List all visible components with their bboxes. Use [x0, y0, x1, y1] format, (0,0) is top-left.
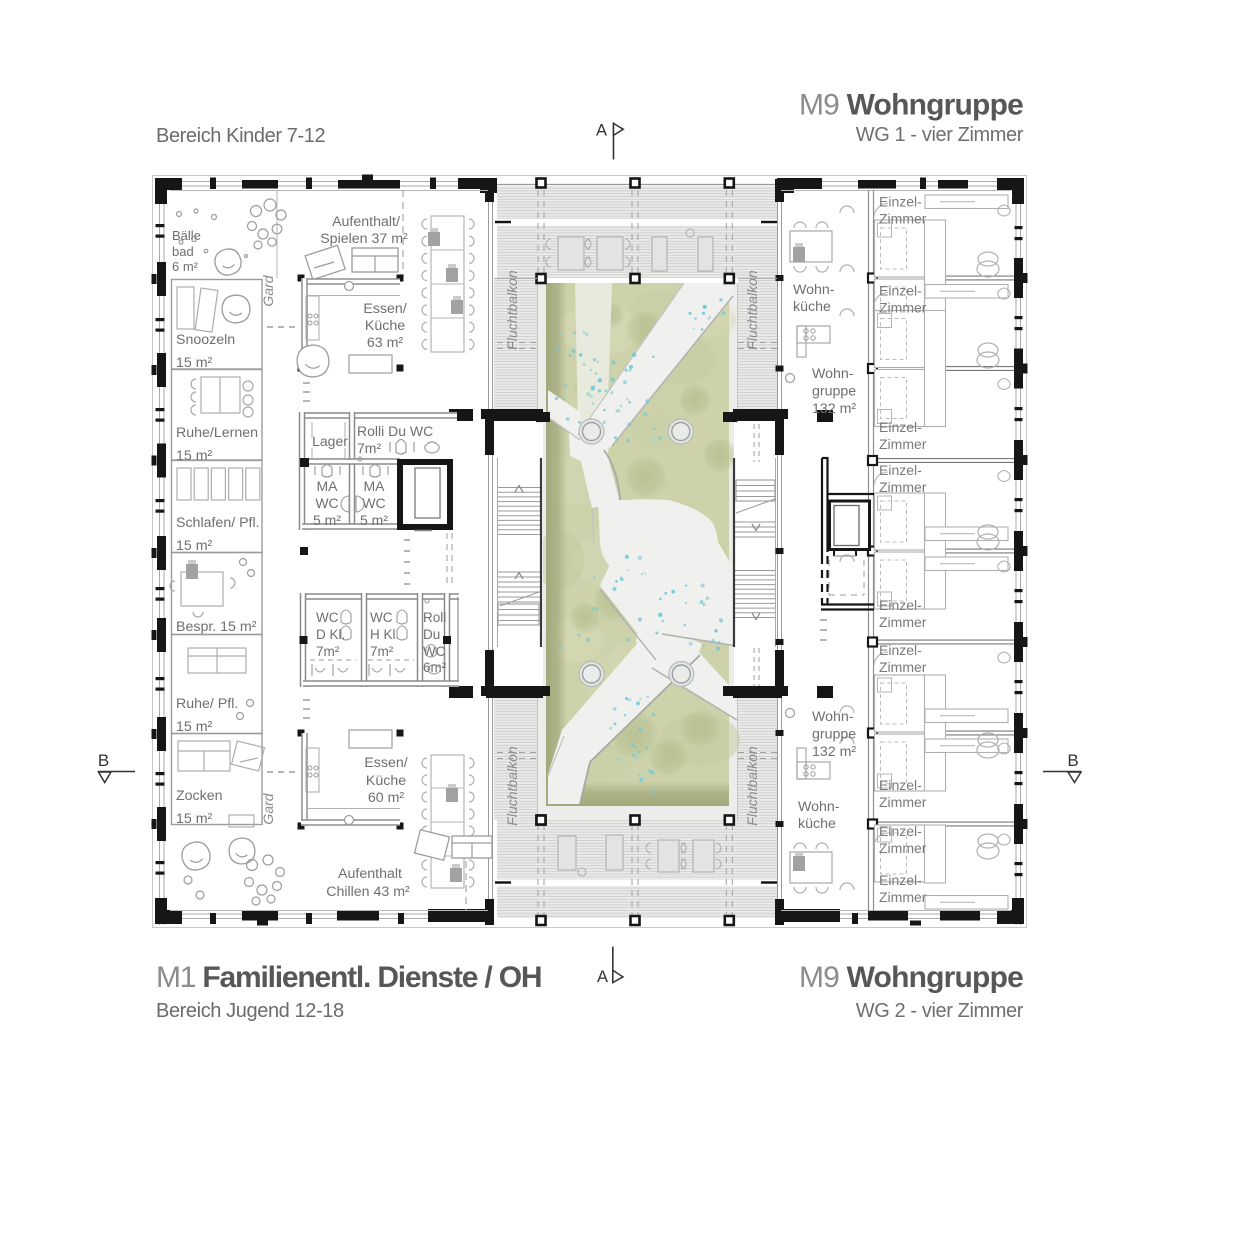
svg-text:Wohn-: Wohn- — [793, 282, 835, 298]
svg-text:Einzel-: Einzel- — [879, 872, 922, 888]
svg-text:Einzel-: Einzel- — [879, 462, 922, 478]
svg-text:Zimmer: Zimmer — [879, 436, 927, 452]
svg-text:Spielen 37 m²: Spielen 37 m² — [320, 231, 408, 247]
svg-text:15 m²: 15 m² — [176, 538, 213, 554]
svg-text:Essen/: Essen/ — [363, 301, 406, 317]
svg-text:küche: küche — [798, 816, 836, 832]
svg-text:WG 1 - vier Zimmer: WG 1 - vier Zimmer — [856, 124, 1024, 146]
svg-text:6 m²: 6 m² — [172, 259, 199, 274]
svg-text:küche: küche — [793, 299, 831, 315]
svg-text:bad: bad — [172, 244, 194, 259]
svg-text:15 m²: 15 m² — [176, 448, 213, 464]
svg-text:Fluchtbalkon: Fluchtbalkon — [744, 746, 760, 826]
svg-text:Fluchtbalkon: Fluchtbalkon — [504, 746, 520, 826]
svg-text:Essen/: Essen/ — [364, 755, 407, 771]
svg-text:15 m²: 15 m² — [176, 355, 213, 371]
svg-text:H Kl.: H Kl. — [370, 627, 399, 642]
svg-text:Fluchtbalkon: Fluchtbalkon — [504, 270, 520, 350]
svg-text:Einzel-: Einzel- — [879, 194, 922, 210]
svg-text:Aufenthalt: Aufenthalt — [338, 866, 402, 882]
svg-text:Fluchtbalkon: Fluchtbalkon — [744, 270, 760, 350]
svg-text:Küche: Küche — [365, 318, 405, 334]
svg-text:WC: WC — [362, 495, 385, 511]
svg-text:Ruhe/Lernen: Ruhe/Lernen — [176, 425, 258, 441]
svg-text:Bespr. 15 m²: Bespr. 15 m² — [176, 619, 257, 635]
svg-text:15 m²: 15 m² — [176, 811, 213, 827]
svg-text:MA: MA — [317, 478, 339, 494]
svg-text:Einzel-: Einzel- — [879, 777, 922, 793]
svg-text:Schlafen/ Pfl.: Schlafen/ Pfl. — [176, 515, 260, 531]
svg-text:Zimmer: Zimmer — [879, 300, 927, 316]
svg-text:WC: WC — [370, 610, 393, 625]
svg-text:Snoozeln: Snoozeln — [176, 332, 235, 348]
svg-text:Ruhe/ Pfl.: Ruhe/ Pfl. — [176, 696, 238, 712]
svg-text:Bereich Jugend 12-18: Bereich Jugend 12-18 — [156, 1000, 344, 1022]
svg-text:Aufenthalt/: Aufenthalt/ — [332, 214, 400, 230]
svg-text:7m²: 7m² — [316, 644, 340, 659]
svg-text:Wohn-: Wohn- — [812, 709, 854, 725]
svg-text:Einzel-: Einzel- — [879, 597, 922, 613]
svg-text:60 m²: 60 m² — [368, 790, 405, 806]
svg-text:Einzel-: Einzel- — [879, 419, 922, 435]
svg-text:Chillen 43 m²: Chillen 43 m² — [326, 884, 410, 900]
svg-text:A: A — [596, 122, 607, 140]
svg-text:A: A — [597, 968, 608, 986]
svg-text:B: B — [98, 751, 109, 770]
svg-text:15 m²: 15 m² — [176, 719, 213, 735]
svg-text:5 m²: 5 m² — [313, 512, 341, 528]
svg-text:gruppe: gruppe — [812, 727, 856, 743]
svg-text:B: B — [1067, 751, 1078, 770]
svg-text:Zimmer: Zimmer — [879, 889, 927, 905]
svg-text:Zocken: Zocken — [176, 788, 223, 804]
svg-text:WC: WC — [316, 610, 339, 625]
svg-text:Wohn-: Wohn- — [798, 799, 840, 815]
svg-text:Bereich Kinder 7-12: Bereich Kinder 7-12 — [156, 125, 325, 147]
svg-text:Zimmer: Zimmer — [879, 794, 927, 810]
svg-text:Du: Du — [423, 627, 440, 642]
svg-text:7m²: 7m² — [357, 440, 381, 456]
svg-text:Gard: Gard — [260, 792, 276, 824]
svg-text:Zimmer: Zimmer — [879, 659, 927, 675]
svg-text:Einzel-: Einzel- — [879, 823, 922, 839]
svg-text:M1 Familienentl. Dienste / OH: M1 Familienentl. Dienste / OH — [156, 961, 541, 994]
svg-text:Zimmer: Zimmer — [879, 614, 927, 630]
svg-text:MA: MA — [364, 478, 386, 494]
svg-text:Einzel-: Einzel- — [879, 642, 922, 658]
svg-text:gruppe: gruppe — [812, 384, 856, 400]
svg-text:Lager: Lager — [312, 433, 348, 449]
svg-text:Rolli Du WC: Rolli Du WC — [357, 423, 433, 439]
svg-text:Gard: Gard — [260, 274, 276, 306]
svg-text:132 m²: 132 m² — [812, 401, 856, 417]
svg-text:Zimmer: Zimmer — [879, 211, 927, 227]
svg-text:Wohn-: Wohn- — [812, 366, 854, 382]
svg-text:Roll: Roll — [423, 610, 446, 625]
svg-text:WC: WC — [315, 495, 338, 511]
svg-text:5 m²: 5 m² — [360, 512, 388, 528]
svg-text:M9 Wohngruppe: M9 Wohngruppe — [799, 89, 1023, 122]
svg-text:6m²: 6m² — [423, 660, 447, 675]
svg-text:132 m²: 132 m² — [812, 744, 856, 760]
svg-text:Zimmer: Zimmer — [879, 479, 927, 495]
svg-text:Einzel-: Einzel- — [879, 283, 922, 299]
svg-text:63 m²: 63 m² — [367, 335, 404, 351]
svg-text:Zimmer: Zimmer — [879, 840, 927, 856]
svg-text:Küche: Küche — [366, 773, 406, 789]
svg-text:7m²: 7m² — [370, 644, 394, 659]
svg-text:Bälle: Bälle — [172, 228, 201, 243]
svg-text:WG 2 - vier Zimmer: WG 2 - vier Zimmer — [856, 1000, 1024, 1022]
svg-text:M9 Wohngruppe: M9 Wohngruppe — [799, 961, 1023, 994]
